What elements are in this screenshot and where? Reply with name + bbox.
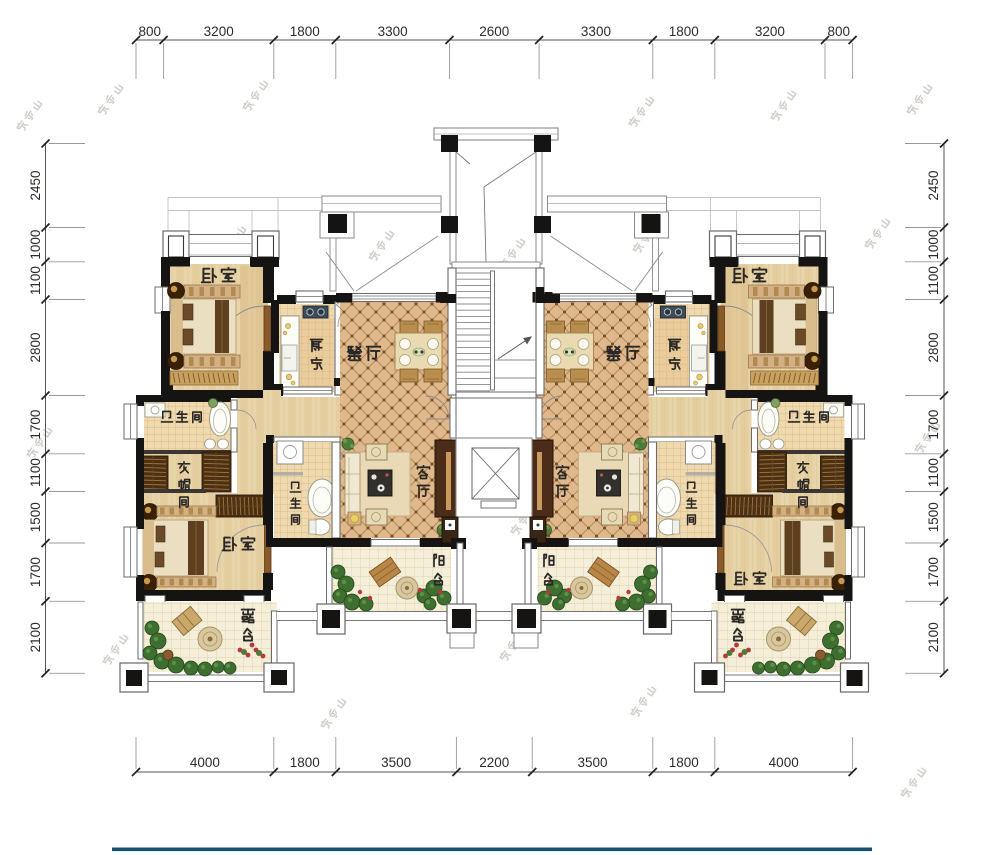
svg-text:1500: 1500: [926, 502, 941, 532]
svg-text:3200: 3200: [204, 24, 234, 39]
svg-text:3500: 3500: [381, 755, 411, 770]
svg-text:3500: 3500: [577, 755, 607, 770]
svg-text:1100: 1100: [926, 266, 941, 295]
svg-text:2100: 2100: [926, 622, 941, 652]
svg-text:1000: 1000: [926, 230, 941, 260]
svg-text:2450: 2450: [28, 170, 43, 200]
svg-text:2200: 2200: [479, 755, 509, 770]
svg-text:1700: 1700: [28, 557, 43, 587]
svg-text:2800: 2800: [926, 332, 941, 362]
svg-text:1100: 1100: [926, 458, 941, 487]
svg-text:1500: 1500: [28, 502, 43, 532]
svg-text:4000: 4000: [190, 755, 220, 770]
svg-text:1800: 1800: [290, 24, 320, 39]
svg-text:2600: 2600: [479, 24, 509, 39]
svg-text:3300: 3300: [581, 24, 611, 39]
svg-text:800: 800: [139, 24, 162, 39]
svg-text:1700: 1700: [28, 410, 43, 440]
svg-text:800: 800: [828, 24, 851, 39]
svg-text:3200: 3200: [755, 24, 785, 39]
svg-text:1100: 1100: [28, 266, 43, 295]
svg-text:1100: 1100: [28, 458, 43, 487]
svg-text:1800: 1800: [669, 755, 699, 770]
svg-text:1800: 1800: [669, 24, 699, 39]
svg-text:2800: 2800: [28, 332, 43, 362]
svg-text:4000: 4000: [769, 755, 799, 770]
svg-text:1000: 1000: [28, 230, 43, 260]
svg-text:1700: 1700: [926, 557, 941, 587]
svg-text:3300: 3300: [378, 24, 408, 39]
svg-text:2450: 2450: [926, 170, 941, 200]
svg-text:2100: 2100: [28, 622, 43, 652]
svg-text:1700: 1700: [926, 410, 941, 440]
svg-text:1800: 1800: [290, 755, 320, 770]
